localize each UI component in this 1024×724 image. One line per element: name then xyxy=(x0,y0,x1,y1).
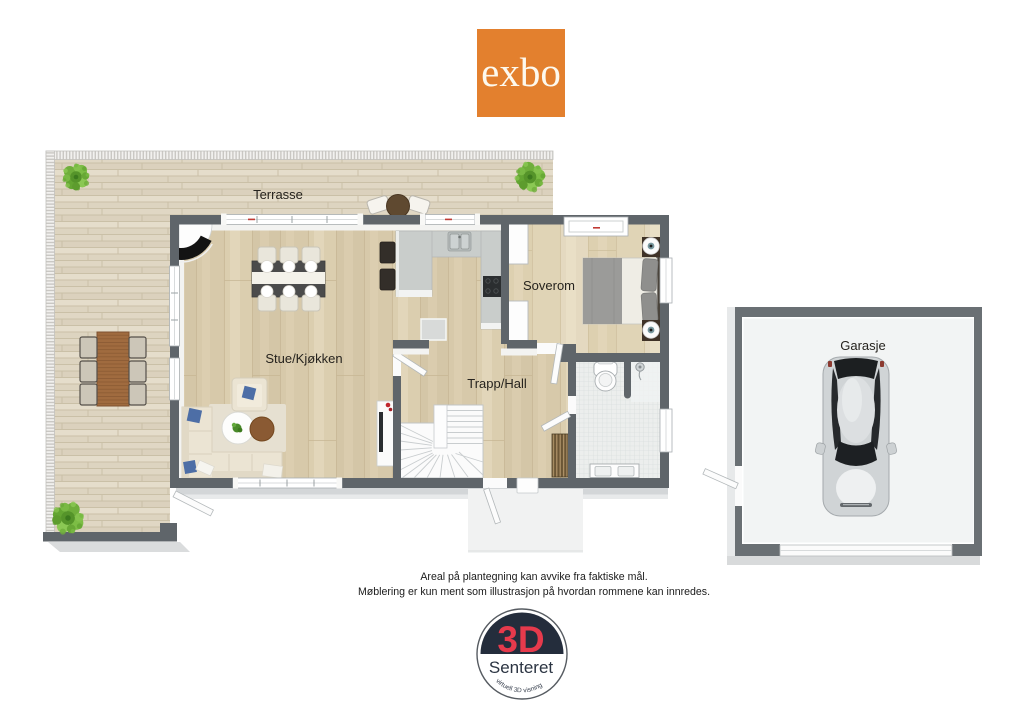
svg-text:Møblering er kun ment som illu: Møblering er kun ment som illustrasjon p… xyxy=(358,586,710,598)
svg-text:Terrasse: Terrasse xyxy=(253,187,303,202)
svg-text:Areal på plantegning kan avvik: Areal på plantegning kan avvike fra fakt… xyxy=(420,571,647,583)
svg-text:Stue/Kjøkken: Stue/Kjøkken xyxy=(265,351,342,366)
svg-text:Senteret: Senteret xyxy=(489,658,554,677)
svg-text:3D: 3D xyxy=(497,619,544,660)
svg-text:Garasje: Garasje xyxy=(840,338,886,353)
svg-text:Soverom: Soverom xyxy=(523,278,575,293)
svg-text:Trapp/Hall: Trapp/Hall xyxy=(467,376,527,391)
svg-text:exbo: exbo xyxy=(481,49,561,95)
